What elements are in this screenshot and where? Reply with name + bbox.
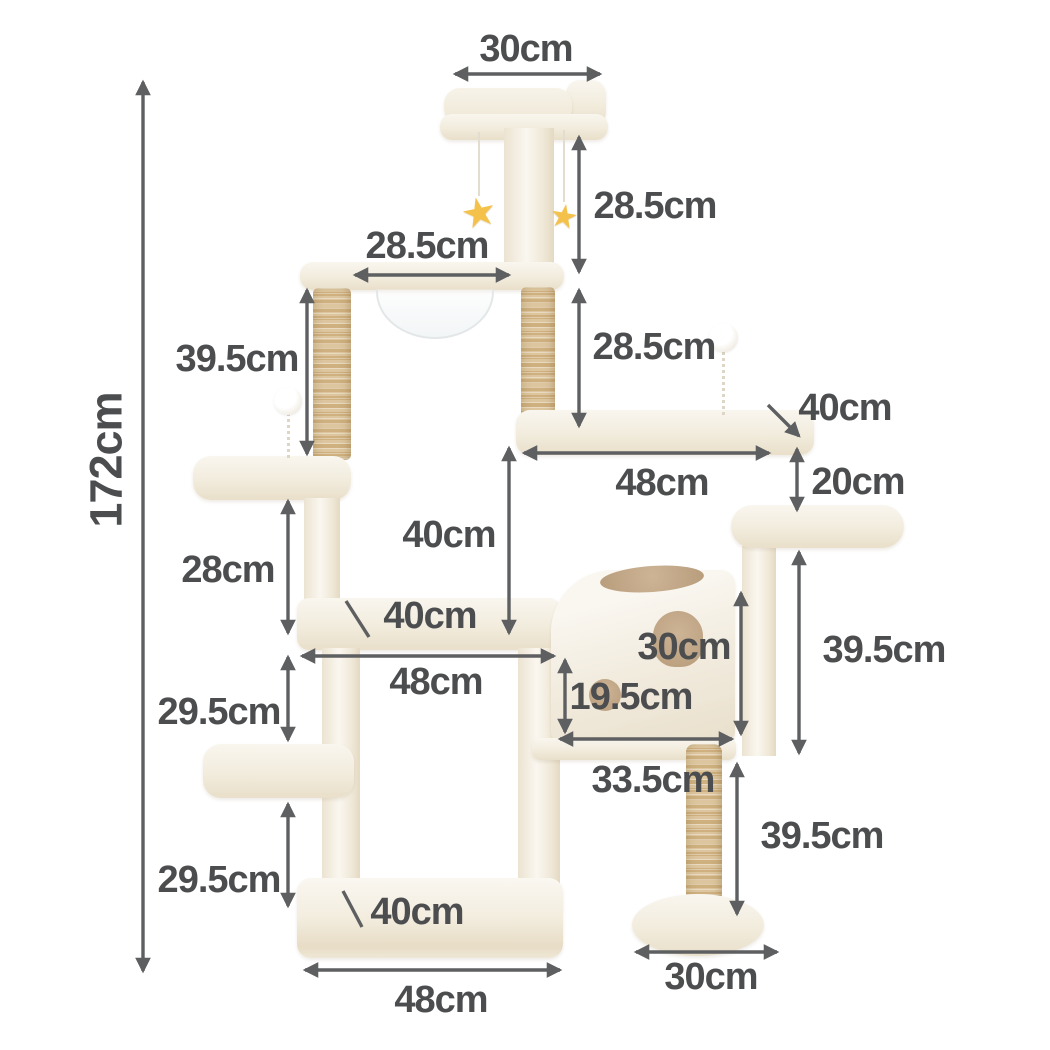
dimension-arrows xyxy=(0,0,1050,1050)
product-dimension-diagram: ★ ★ xyxy=(0,0,1050,1050)
leader-right-platform-depth xyxy=(768,405,799,436)
leader-base-depth xyxy=(343,891,362,927)
leader-middle-platform-depth xyxy=(346,601,369,637)
